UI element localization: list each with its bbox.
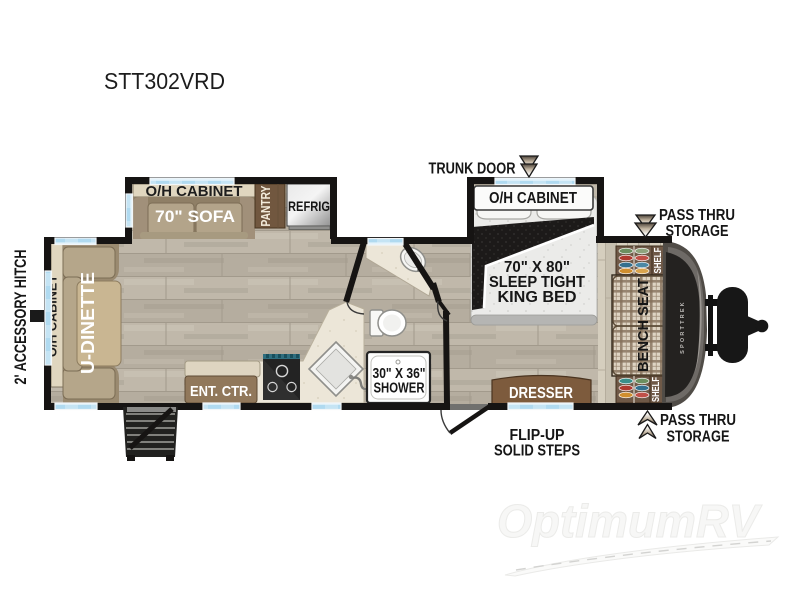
svg-text:PASS THRU: PASS THRU [660,412,736,429]
svg-text:PASS THRU: PASS THRU [659,207,735,224]
svg-text:TRUNK DOOR: TRUNK DOOR [429,161,516,178]
svg-text:FLIP-UP: FLIP-UP [510,427,565,444]
svg-text:KING BED: KING BED [498,289,577,306]
svg-text:SOLID STEPS: SOLID STEPS [494,443,580,460]
svg-text:OptimumRV: OptimumRV [497,495,762,547]
svg-text:STORAGE: STORAGE [667,429,730,446]
svg-text:O/H CABINET: O/H CABINET [146,183,243,200]
svg-text:DRESSER: DRESSER [509,385,573,402]
svg-text:SHELF: SHELF [651,377,662,402]
svg-text:STORAGE: STORAGE [666,223,729,240]
svg-text:STT302VRD: STT302VRD [104,68,225,94]
svg-text:SHOWER: SHOWER [374,381,425,397]
svg-text:SPORTTREK: SPORTTREK [680,300,686,354]
svg-text:SHELF: SHELF [653,248,664,274]
svg-text:70" SOFA: 70" SOFA [155,207,235,226]
svg-text:BENCH SEAT: BENCH SEAT [635,278,652,372]
svg-text:REFRIG: REFRIG [288,198,330,214]
svg-text:ENT. CTR.: ENT. CTR. [190,383,252,400]
svg-text:PANTRY: PANTRY [258,185,273,226]
svg-text:O/H CABINET: O/H CABINET [489,190,577,207]
svg-text:2' ACCESSORY HITCH: 2' ACCESSORY HITCH [11,250,30,385]
svg-text:U-DINETTE: U-DINETTE [78,272,98,374]
